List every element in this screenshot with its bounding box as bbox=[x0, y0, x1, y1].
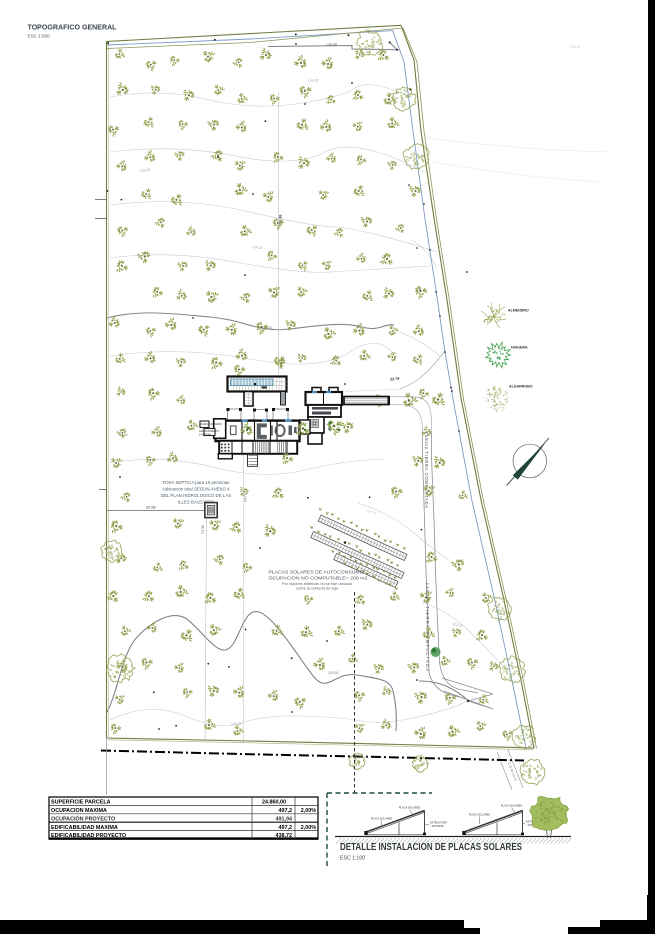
svg-text:SOPORTE: SOPORTE bbox=[432, 825, 445, 828]
svg-text:125.50: 125.50 bbox=[328, 671, 338, 675]
svg-text:PLACA SOLARES: PLACA SOLARES bbox=[501, 804, 523, 808]
svg-text:ESC 1:500: ESC 1:500 bbox=[28, 33, 51, 38]
svg-text:24.860,00: 24.860,00 bbox=[262, 800, 286, 806]
svg-text:128.00: 128.00 bbox=[570, 45, 580, 49]
svg-text:EDIFICABILIDAD PROYECTO: EDIFICABILIDAD PROYECTO bbox=[51, 833, 126, 839]
svg-text:PLACA SOLARES: PLACA SOLARES bbox=[399, 806, 421, 810]
svg-text:74.36: 74.36 bbox=[201, 525, 205, 534]
svg-text:camino TIERRA COMPACTADA: camino TIERRA COMPACTADA bbox=[424, 432, 429, 508]
svg-text:491,94: 491,94 bbox=[276, 816, 293, 822]
svg-text:HIGUERA: HIGUERA bbox=[511, 346, 528, 350]
svg-text:SUPERFICIE PARCELA: SUPERFICIE PARCELA bbox=[51, 800, 111, 806]
svg-text:ALGARROBO: ALGARROBO bbox=[509, 385, 533, 389]
svg-text:PLACA SOLARES: PLACA SOLARES bbox=[371, 817, 393, 821]
svg-text:APARCAMIENTO: APARCAMIENTO bbox=[199, 429, 220, 433]
svg-text:32.08: 32.08 bbox=[146, 506, 156, 510]
svg-text:OCUPACION MAXIMA: OCUPACION MAXIMA bbox=[51, 808, 107, 814]
svg-text:PLACAS SOLARES DE AUTOCONSUMO: PLACAS SOLARES DE AUTOCONSUMO bbox=[269, 570, 364, 576]
svg-text:126.00: 126.00 bbox=[308, 78, 319, 83]
svg-text:ALMENDRO: ALMENDRO bbox=[508, 309, 529, 313]
svg-text:TOPOGRAFICO GENERAL: TOPOGRAFICO GENERAL bbox=[28, 23, 117, 32]
svg-text:94.79: 94.79 bbox=[244, 493, 248, 502]
svg-text:128.00: 128.00 bbox=[326, 43, 337, 47]
svg-text:2,00%: 2,00% bbox=[301, 825, 316, 831]
svg-text:PLACA SOLARES: PLACA SOLARES bbox=[469, 813, 491, 817]
svg-text:ESC 1:100: ESC 1:100 bbox=[340, 856, 365, 862]
svg-text:32.79: 32.79 bbox=[390, 377, 400, 382]
svg-text:2,00%: 2,00% bbox=[301, 808, 316, 814]
svg-text:497,2: 497,2 bbox=[279, 825, 293, 831]
svg-text:EDIFICABILIDAD MAXIMA: EDIFICABILIDAD MAXIMA bbox=[51, 825, 118, 831]
svg-text:cubicacion total SEGUN ANEXO 4: cubicacion total SEGUN ANEXO 4 bbox=[162, 487, 230, 492]
svg-text:DETALLE INSTALACION DE PLACAS: DETALLE INSTALACION DE PLACAS SOLARES bbox=[340, 842, 522, 853]
svg-text:DEL PLAN HIDROLOGICO DE LAS: DEL PLAN HIDROLOGICO DE LAS bbox=[161, 493, 231, 498]
svg-text:100.28: 100.28 bbox=[231, 722, 241, 726]
svg-text:ACCESO RODADO: ACCESO RODADO bbox=[199, 422, 222, 426]
svg-text:438,72: 438,72 bbox=[276, 833, 293, 839]
svg-text:497,2: 497,2 bbox=[279, 808, 293, 814]
svg-text:OCUPACIÓN PROYECTO: OCUPACIÓN PROYECTO bbox=[51, 814, 115, 822]
svg-text:sobre la cubierta de teja: sobre la cubierta de teja bbox=[296, 586, 338, 591]
svg-text:FOSA SEPTICA para 10 personas: FOSA SEPTICA para 10 personas bbox=[163, 480, 231, 485]
svg-text:2 PLAZAS: 2 PLAZAS bbox=[199, 433, 211, 437]
